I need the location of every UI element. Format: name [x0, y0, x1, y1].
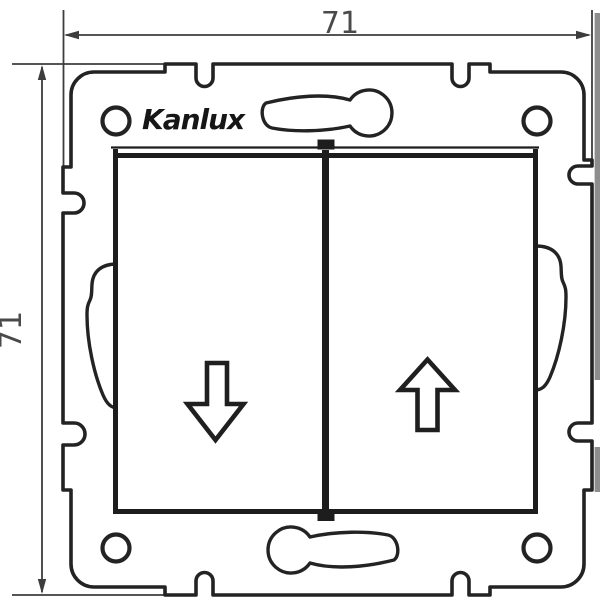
screw-hole-top-right: [524, 108, 551, 135]
artifact-strip-upper: [595, 13, 600, 380]
artifact-strip-lower: [595, 447, 600, 492]
dimension-arrow-left-icon: [64, 31, 79, 39]
width-dimension-label: 71: [321, 6, 359, 41]
drawing-svg: 71 71 Kanlux: [0, 0, 600, 600]
brand-logo: Kanlux: [142, 103, 246, 136]
height-dimension-label: 71: [0, 311, 29, 349]
screw-hole-bottom-right: [524, 535, 551, 562]
dimension-arrow-up-icon: [38, 65, 46, 80]
rocker-switch-module: [111, 140, 539, 522]
divider-bottom-stub: [318, 511, 335, 521]
screw-hole-top-left: [103, 108, 130, 135]
divider-top-stub: [318, 140, 335, 150]
switch-dimension-drawing: 71 71 Kanlux: [0, 0, 600, 600]
dimension-arrow-down-icon: [38, 579, 46, 594]
screw-hole-bottom-left: [103, 535, 130, 562]
right-edge-artifact: [595, 13, 600, 492]
dimension-arrow-right-icon: [576, 31, 591, 39]
